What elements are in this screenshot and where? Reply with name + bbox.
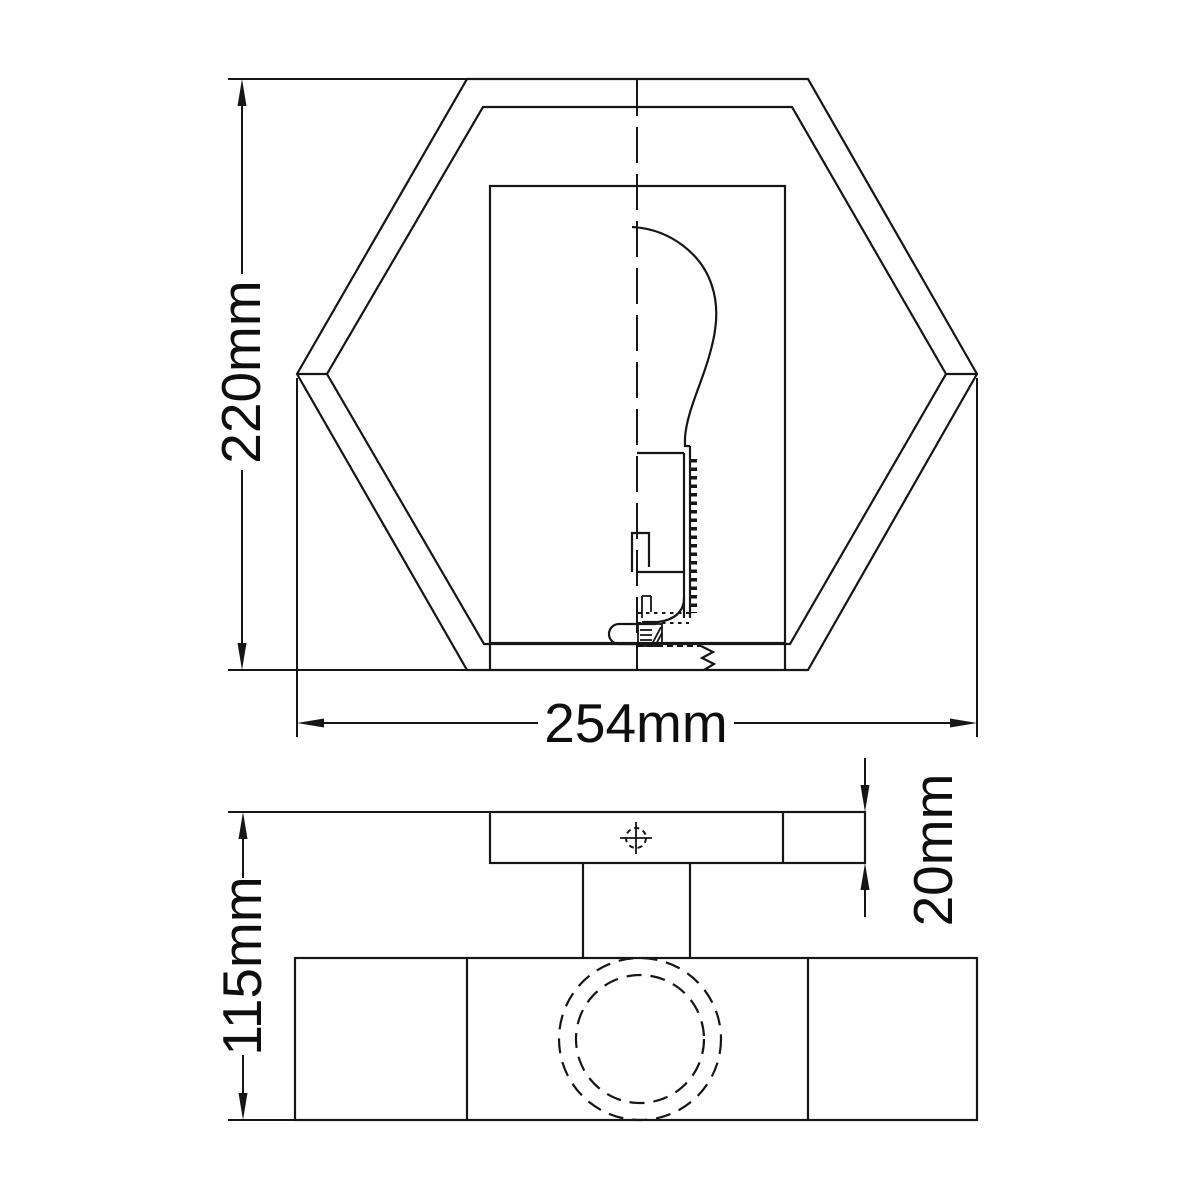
plate-thickness-dimension-label: 20mm	[902, 774, 964, 927]
side-view	[295, 812, 977, 1120]
lamp-opening-outer-circle	[559, 958, 721, 1120]
bulb-neck-step	[685, 438, 690, 446]
bracket-zigzag-end	[701, 646, 714, 670]
shade-body	[295, 958, 977, 1120]
mount-tab	[609, 624, 656, 644]
front-view-dimensions: 220mm 254mm	[210, 79, 977, 754]
body-arrow-up	[239, 812, 248, 839]
width-dimension-label: 254mm	[544, 692, 727, 754]
mounting-plate	[490, 812, 865, 863]
bulb-outline	[632, 227, 716, 438]
body-height-dimension-label: 115mm	[211, 876, 273, 1055]
body-arrow-down	[239, 1093, 248, 1120]
lamp-opening-inner-circle	[576, 975, 704, 1103]
width-arrow-left	[297, 719, 324, 728]
screw-symbol	[620, 822, 652, 854]
bulb-half-section	[632, 227, 716, 623]
base-hardware	[609, 624, 714, 670]
holder-step-detail	[632, 533, 649, 572]
holder-contact-detail	[642, 596, 651, 618]
plate-arrow-up	[861, 863, 870, 890]
height-dimension-label: 220mm	[210, 280, 272, 463]
body-height-dimension: 115mm	[211, 812, 490, 1120]
dimension-drawing-canvas: 220mm 254mm	[0, 0, 1200, 1200]
plate-arrow-down	[861, 785, 870, 812]
height-dimension: 220mm	[210, 79, 470, 670]
socket-bottom-curve	[642, 598, 684, 622]
width-arrow-right	[950, 719, 977, 728]
front-view	[297, 79, 977, 670]
plate-thickness-dimension: 20mm	[861, 758, 965, 926]
height-arrow-up	[238, 79, 247, 106]
technical-drawing-page: 220mm 254mm	[0, 0, 1200, 1200]
height-arrow-down	[238, 643, 247, 670]
